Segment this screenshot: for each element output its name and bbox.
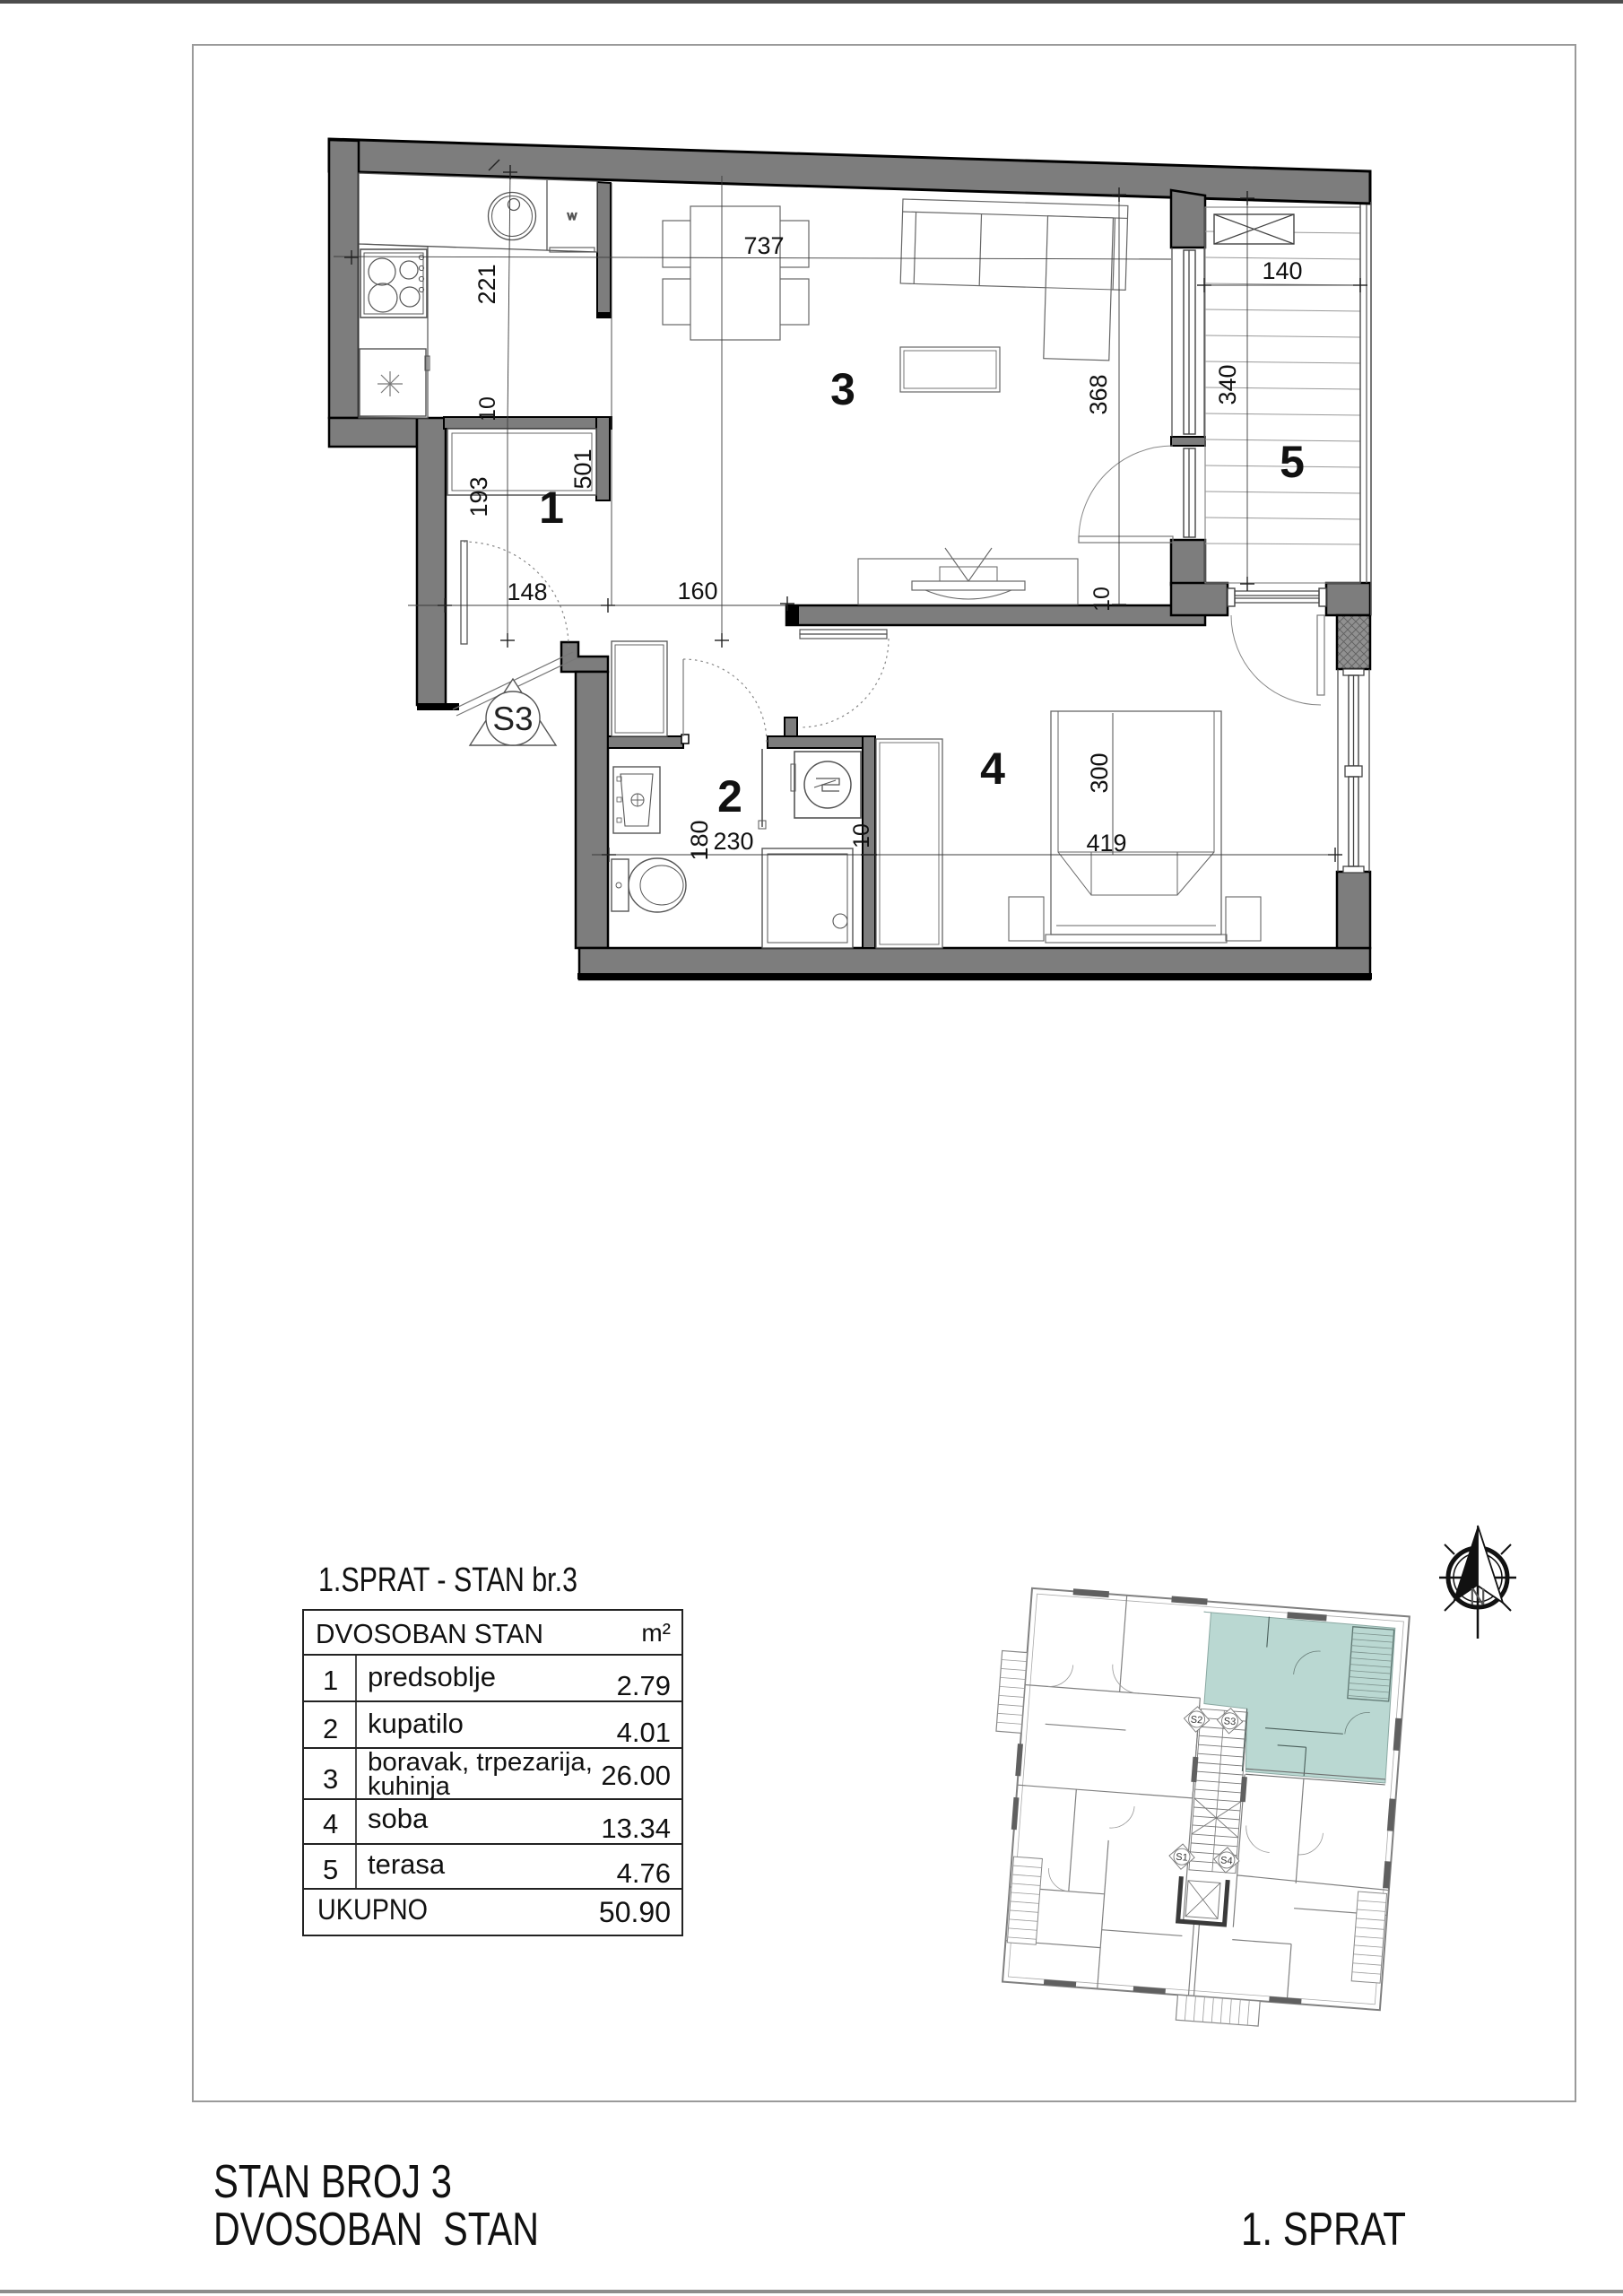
svg-text:160: 160 <box>677 578 717 604</box>
svg-text:737: 737 <box>743 232 784 259</box>
svg-text:1: 1 <box>323 1665 338 1696</box>
svg-text:4: 4 <box>323 1808 338 1839</box>
svg-text:10: 10 <box>475 396 500 422</box>
svg-text:230: 230 <box>713 828 753 855</box>
svg-text:26.00: 26.00 <box>601 1760 671 1791</box>
svg-text:DVOSOBAN STAN: DVOSOBAN STAN <box>213 2204 539 2256</box>
svg-text:kupatilo: kupatilo <box>368 1708 464 1739</box>
svg-text:193: 193 <box>465 476 492 517</box>
svg-text:4.76: 4.76 <box>617 1857 671 1889</box>
svg-text:kuhinja: kuhinja <box>368 1772 451 1801</box>
svg-text:S3: S3 <box>492 700 533 737</box>
svg-text:S3: S3 <box>1223 1716 1236 1727</box>
svg-text:terasa: terasa <box>368 1848 446 1880</box>
svg-text:368: 368 <box>1085 374 1112 414</box>
svg-text:300: 300 <box>1086 752 1113 793</box>
svg-text:soba: soba <box>368 1803 429 1834</box>
svg-text:1: 1 <box>539 483 564 533</box>
svg-text:W: W <box>568 212 577 222</box>
svg-text:148: 148 <box>507 578 547 605</box>
svg-text:5: 5 <box>1280 437 1305 487</box>
svg-text:S4: S4 <box>1220 1855 1233 1866</box>
svg-text:S2: S2 <box>1190 1714 1202 1726</box>
svg-text:10: 10 <box>849 823 874 848</box>
svg-text:1.SPRAT - STAN br.3: 1.SPRAT - STAN br.3 <box>318 1561 577 1599</box>
svg-text:DVOSOBAN STAN: DVOSOBAN STAN <box>316 1618 543 1649</box>
svg-text:221: 221 <box>473 264 500 304</box>
svg-text:140: 140 <box>1262 257 1302 284</box>
svg-text:2.79: 2.79 <box>617 1670 671 1701</box>
svg-text:1. SPRAT: 1. SPRAT <box>1241 2204 1406 2256</box>
svg-text:180: 180 <box>686 820 713 860</box>
svg-text:340: 340 <box>1214 364 1241 404</box>
svg-text:predsoblje: predsoblje <box>368 1661 496 1692</box>
svg-text:501: 501 <box>569 448 596 489</box>
svg-text:10: 10 <box>1089 587 1115 612</box>
svg-text:2: 2 <box>323 1713 338 1744</box>
svg-text:STAN BROJ 3: STAN BROJ 3 <box>213 2156 452 2208</box>
svg-text:UKUPNO: UKUPNO <box>317 1893 428 1926</box>
svg-text:2: 2 <box>717 771 742 822</box>
svg-text:50.90: 50.90 <box>599 1896 671 1928</box>
svg-text:419: 419 <box>1086 830 1126 857</box>
svg-text:3: 3 <box>830 364 855 414</box>
svg-text:4.01: 4.01 <box>617 1717 671 1748</box>
svg-text:3: 3 <box>323 1763 338 1795</box>
svg-text:S1: S1 <box>1176 1852 1188 1864</box>
svg-text:5: 5 <box>323 1854 338 1885</box>
svg-text:m²: m² <box>641 1619 671 1647</box>
svg-text:13.34: 13.34 <box>601 1813 671 1844</box>
svg-text:N: N <box>1470 1583 1487 1610</box>
svg-text:4: 4 <box>980 744 1005 794</box>
